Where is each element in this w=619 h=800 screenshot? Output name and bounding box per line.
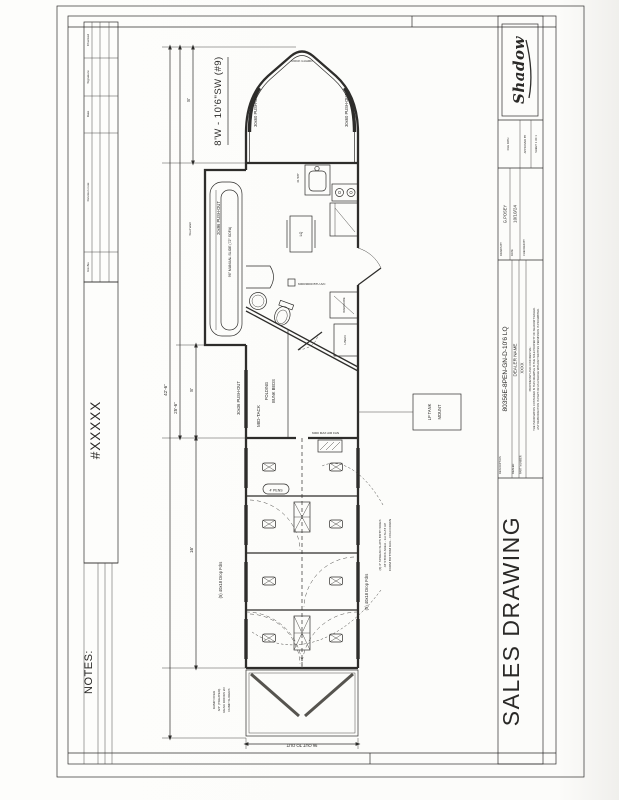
lp-label-1: LP TANK bbox=[427, 403, 432, 420]
file-path-label: FILE PATH bbox=[506, 138, 510, 151]
kitchen-sink: 41 5/8" bbox=[296, 165, 330, 195]
slat-note-3: FROM BOTTOM RAIL - FOLD DOWN bbox=[388, 519, 392, 571]
ac-label: 6000/9000 BTU A/C bbox=[298, 282, 326, 286]
dim-overall-length: 42'-6" bbox=[163, 384, 168, 396]
rev-col-date: Date bbox=[86, 110, 90, 117]
feeders-right-label: (5) 40x18 Drop Fdrs bbox=[364, 574, 369, 611]
disclaimer-line-1: PROPRIETARY AND CONFIDENTIAL: bbox=[528, 346, 532, 391]
scanned-sales-drawing-sheet: Checked Signature Date Revision note Rev… bbox=[0, 0, 619, 800]
table-label: LQ bbox=[299, 231, 303, 236]
pens-tag-label: 4' PENS bbox=[269, 489, 283, 493]
linen-closet: LINEN bbox=[334, 324, 358, 356]
nose-window-left-label: 30x60 PUSH-OUT bbox=[253, 93, 258, 127]
feeders-left-label: (5) 40x18 Drop Fdrs bbox=[218, 562, 223, 599]
ramp-note-2: 3/4" (TREATED) bbox=[217, 689, 221, 712]
description-value: 80356E-8PEN-GN-D-10'6 LQ bbox=[502, 326, 509, 411]
bunks-label-1: FOLDING bbox=[264, 382, 269, 400]
slat-note-1: (2) 3" SPREAD SLATS BOTH SIDES bbox=[378, 519, 382, 570]
wardrobe-label: WARDROBE bbox=[342, 297, 346, 312]
date-label: DATE bbox=[510, 249, 514, 256]
ac-unit-note: 6000/9000 BTU A/C bbox=[288, 279, 326, 286]
part-number-value: XXXX bbox=[520, 362, 525, 373]
wardrobe: WARDROBE bbox=[330, 292, 358, 318]
lp-tank-callout: LP TANK MOUNT bbox=[358, 394, 461, 430]
stock-area: 4' PENS (5) 40x18 Drop Fdrs (5) 40x18 Dr… bbox=[218, 438, 392, 668]
midtack-label: MID-TACK bbox=[256, 404, 261, 427]
approved-label: APPROVED BY bbox=[523, 134, 527, 153]
ramp-note-1: RAMP OVER bbox=[212, 690, 216, 709]
dim-stock-area: 16' bbox=[189, 547, 194, 553]
disclaimer-line-3: ANY REPRODUCTION IN PART OR AS A WHOLE W… bbox=[536, 308, 540, 430]
rev-col-checked: Checked bbox=[86, 34, 90, 46]
lp-label-2: MOUNT bbox=[437, 404, 442, 420]
date-value: 10/10/24 bbox=[513, 205, 518, 223]
stud-wall-note: Stud Wall bbox=[188, 222, 192, 235]
dimension-lines: 42'-6" 25'-6" 8' 8' 16' 96 OUT TO OUT bbox=[162, 47, 358, 749]
entry-door bbox=[358, 248, 381, 285]
ramp-note-4: DUMP SLIDERS bbox=[227, 688, 231, 711]
dinette-table: LQ bbox=[287, 216, 315, 252]
notes-label: NOTES: bbox=[83, 650, 95, 694]
nose-window-right-label: 30x60 PUSH-OUT bbox=[344, 93, 349, 127]
sheet-label: SHEET: 1 OF 1 bbox=[534, 135, 538, 153]
mid-tack-room: 30x36 PUSH-OUT MID-TACK FOLDING BUNK BED… bbox=[236, 330, 461, 452]
linen-label: LINEN bbox=[343, 335, 347, 344]
pens-tag: 4' PENS bbox=[263, 484, 289, 494]
refrigerator bbox=[330, 203, 358, 236]
nose-peak-label: ROCK GUARD bbox=[292, 59, 314, 63]
midtack-window-label: 30x36 PUSH-OUT bbox=[236, 381, 241, 415]
dim-rear-width: 96 OUT TO OUT bbox=[286, 743, 317, 748]
sheet-number: #XXXXX bbox=[88, 401, 103, 460]
model-callout: 8'W - 10'6"SW (#9) bbox=[213, 56, 228, 145]
lq-sofa-label: 96" MANUAL SLIDE (72" SOFA) bbox=[228, 227, 232, 277]
sink-dim-note: 41 5/8" bbox=[296, 173, 300, 183]
ramp-note: RAMP OVER 3/4" (TREATED) REAR DOORS W/ D… bbox=[212, 687, 231, 713]
lq-slide-label: 20x96 PUSH-OUT bbox=[216, 201, 221, 235]
checked-by-label: CHECKED BY bbox=[522, 239, 526, 256]
drawn-by-label: DRAWN BY bbox=[499, 242, 503, 256]
description-label: DESCRIPTION bbox=[498, 456, 502, 474]
slat-note-2: AT STOCK AREA - 1st SLAT UP bbox=[383, 523, 387, 567]
living-quarters: 20x96 PUSH-OUT 96" MANUAL SLIDE (72" SOF… bbox=[188, 165, 381, 371]
cooktop bbox=[332, 184, 358, 201]
doc-type-title: SALES DRAWING bbox=[498, 516, 524, 726]
notes-area: NOTES: bbox=[83, 563, 118, 764]
bunks-label-2: BUNK BEDS bbox=[271, 379, 276, 403]
dim-front-section: 25'-6" bbox=[173, 402, 178, 414]
fan-label: 6000 MAX AIR FAN bbox=[312, 431, 339, 435]
dealer-value: DEALER NAME bbox=[513, 344, 518, 377]
shadow-logo: Shadow bbox=[510, 35, 531, 103]
dim-nose: 8' bbox=[186, 98, 191, 102]
center-gate-panel-1 bbox=[294, 502, 310, 532]
rev-col-note: Revision note bbox=[86, 182, 90, 201]
revision-table: Checked Signature Date Revision note Rev… bbox=[84, 22, 118, 282]
sheet-number-box: #XXXXX bbox=[84, 282, 118, 563]
model-callout-text: 8'W - 10'6"SW (#9) bbox=[213, 56, 224, 145]
max-air-fan: 6000 MAX AIR FAN bbox=[312, 431, 342, 452]
rev-col-signature: Signature bbox=[86, 70, 90, 84]
shadow-logo-text: Shadow bbox=[510, 35, 528, 103]
drawing-canvas: Checked Signature Date Revision note Rev… bbox=[0, 0, 619, 800]
part-number-label: PART NUMBER bbox=[519, 455, 523, 474]
rev-col-revno: RevNo bbox=[86, 262, 90, 272]
drawn-by-value: G.POSEY bbox=[503, 205, 508, 224]
rear-doors: RAMP OVER 3/4" (TREATED) REAR DOORS W/ D… bbox=[212, 612, 358, 736]
sofa-slideout bbox=[205, 170, 246, 345]
title-block: Shadow FILE PATH APPROVED BY SHEET: 1 OF… bbox=[498, 16, 543, 764]
dealer-label: DEALER bbox=[511, 463, 515, 474]
dim-midtack: 8' bbox=[189, 388, 194, 392]
ramp-note-3: REAR DOORS W/ bbox=[222, 687, 226, 713]
disclaimer-line-2: THE INFORMATION CONTAINED IN THIS DRAWIN… bbox=[532, 307, 536, 431]
gooseneck-nose: 30x60 PUSH-OUT 30x60 PUSH-OUT ROCK GUARD bbox=[246, 52, 358, 164]
